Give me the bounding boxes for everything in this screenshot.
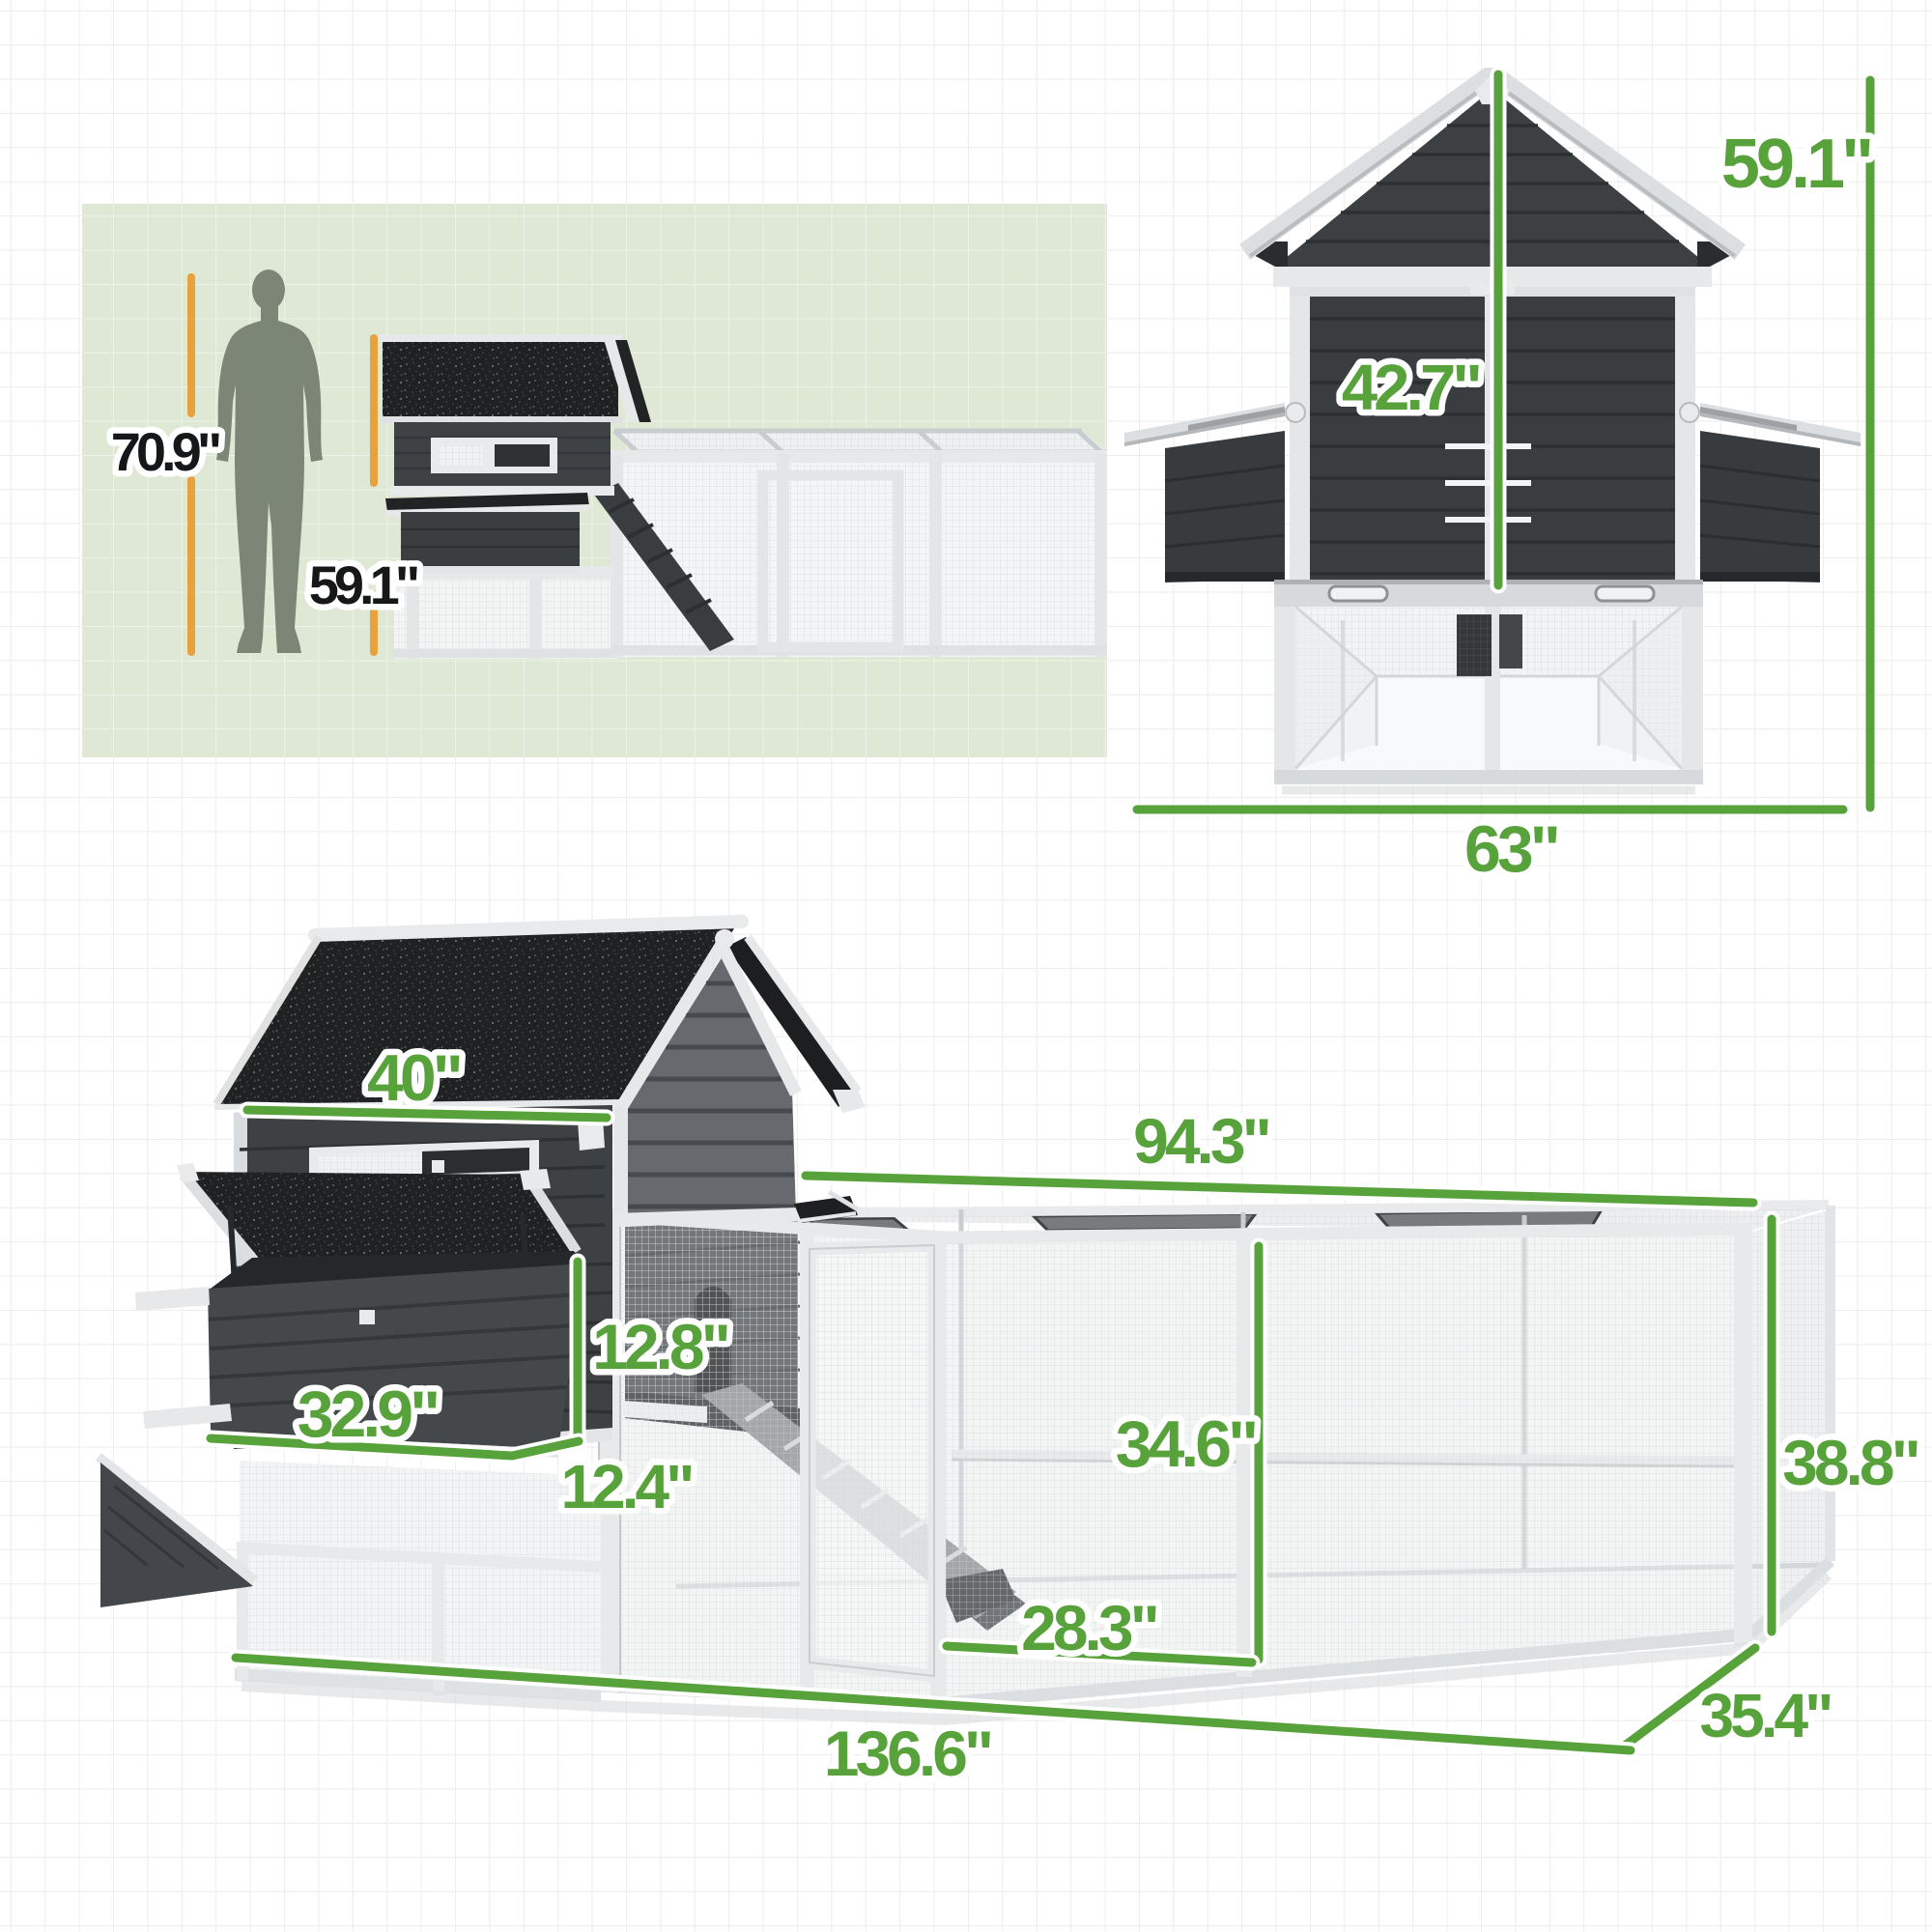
svg-text:35.4": 35.4": [1700, 1681, 1832, 1750]
svg-text:12.8": 12.8": [592, 1311, 727, 1382]
svg-text:136.6": 136.6": [824, 1718, 990, 1789]
svg-text:28.3": 28.3": [1021, 1592, 1156, 1663]
svg-text:34.6": 34.6": [1116, 1407, 1256, 1481]
svg-text:59.1": 59.1": [1721, 126, 1870, 203]
svg-text:32.9": 32.9": [298, 1378, 438, 1451]
svg-text:63": 63": [1464, 812, 1557, 886]
svg-text:42.7": 42.7": [1342, 352, 1479, 424]
svg-text:94.3": 94.3": [1133, 1105, 1268, 1177]
svg-text:70.9": 70.9": [111, 421, 219, 482]
svg-text:38.8": 38.8": [1782, 1427, 1918, 1498]
svg-text:12.4": 12.4": [561, 1452, 693, 1521]
svg-text:59.1": 59.1": [309, 554, 417, 615]
svg-text:40": 40": [367, 1041, 460, 1115]
